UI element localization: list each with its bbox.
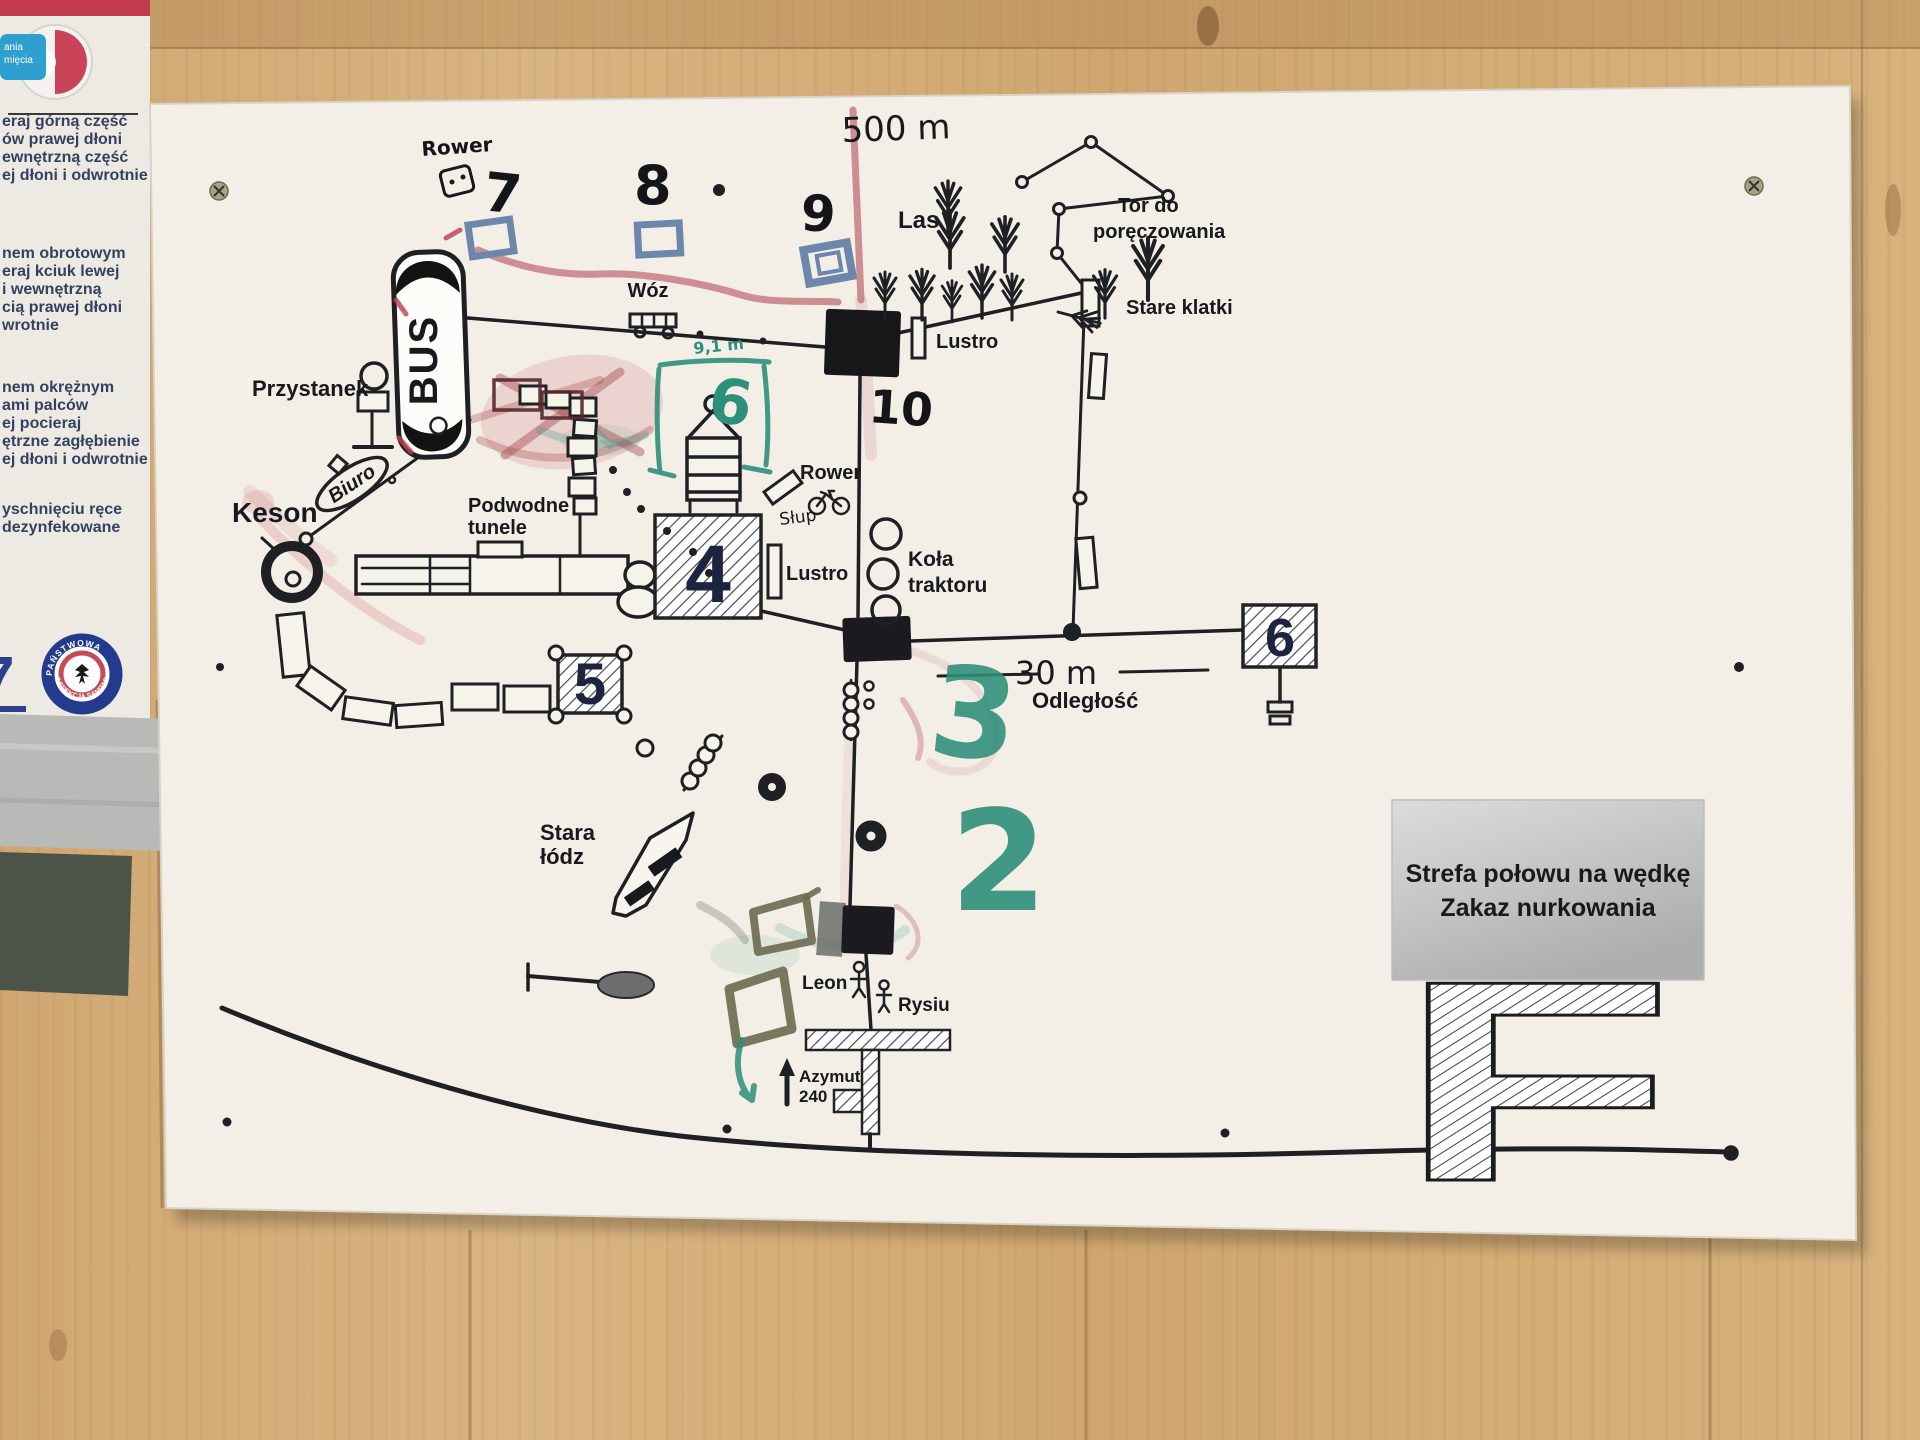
map-dot — [216, 663, 224, 671]
poster-red-band — [0, 0, 150, 16]
measure-dash — [1120, 670, 1208, 672]
caisson-label: Keson — [232, 497, 318, 528]
map-dot — [1221, 1129, 1230, 1138]
bus-stop-label: Przystanek — [252, 376, 369, 401]
mirror-top-shape — [912, 318, 925, 358]
forest-label: Las — [898, 207, 939, 234]
bike-label: Rower — [800, 462, 861, 484]
poster-line: wrotnie — [1, 317, 59, 334]
poster-step-number: 7 — [0, 645, 14, 714]
vertical-main-line — [858, 377, 860, 617]
green-number-3: 3 — [923, 638, 1025, 791]
distance-500-label: 500 m — [841, 107, 951, 151]
poster-line: eraj górną część — [2, 113, 128, 130]
photo-of-dive-site-map: ania mięcia eraj górną część ów prawej d… — [0, 0, 1920, 1440]
poster-line: dezynfekowane — [2, 519, 120, 536]
platform-box-bottom — [841, 905, 895, 955]
bus-label: BUS — [402, 315, 446, 405]
map-dot — [713, 184, 725, 196]
old-boat-label-2: łódz — [540, 844, 584, 869]
zone-label-1: Strefa połowu na wędkę — [1406, 860, 1691, 888]
zone-label-2: Zakaz nurkowania — [1440, 894, 1656, 922]
wood-knot — [1197, 6, 1219, 46]
mirror-top-label: Lustro — [936, 331, 998, 353]
screw-icon — [1745, 177, 1763, 195]
box6-number: 6 — [1265, 608, 1295, 668]
cart-label: Wóz — [627, 280, 668, 302]
green-number-2: 2 — [950, 781, 1047, 944]
box5-number: 5 — [574, 652, 606, 717]
tunnels-label-1: Podwodne — [468, 495, 569, 517]
wheels-label-1: Koła — [908, 548, 954, 571]
old-cages-label: Stare klatki — [1126, 297, 1233, 319]
poster-instructions-block4: yschnięciu ręce dezynfekowane — [2, 501, 122, 536]
poster-line: ami palców — [2, 397, 89, 414]
mirror-mid-shape — [768, 545, 781, 598]
poster-line: nem okrężnym — [2, 379, 114, 396]
rope-course-label-1: Tor do — [1118, 195, 1179, 217]
poster-line: ów prawej dłoni — [2, 131, 122, 148]
poster-line: eraj kciuk lewej — [2, 263, 119, 280]
leon-label: Leon — [802, 973, 847, 994]
poster-instructions-block1: eraj górną część ów prawej dłoni ewnętrz… — [2, 113, 148, 184]
azimuth-label-1: Azymut — [799, 1067, 861, 1086]
map-dot — [723, 1125, 732, 1134]
wood-knot — [49, 1329, 67, 1361]
tunnels-label-2: tunele — [468, 517, 527, 539]
badge-text: mięcia — [4, 55, 33, 66]
box4-number: 4 — [685, 529, 731, 620]
badge-text: ania — [4, 42, 23, 53]
number-8: 8 — [634, 154, 672, 217]
number-9: 9 — [799, 184, 837, 244]
poster-line: i wewnętrzną — [2, 281, 102, 298]
rope-course-label-2: poręczowania — [1093, 221, 1226, 243]
distance-word-label: Odległość — [1032, 688, 1138, 713]
letter-f-shape: F — [1398, 922, 1674, 1241]
poster-line: ewnętrzną część — [2, 149, 128, 166]
poster-line: yschnięciu ręce — [2, 501, 122, 518]
poster-line: ej dłoni i odwrotnie — [2, 167, 148, 184]
poster-line: ej dłoni i odwrotnie — [2, 451, 148, 468]
mirror-mid-label: Lustro — [786, 563, 848, 585]
wood-knot — [1885, 184, 1901, 236]
dark-folder — [0, 852, 132, 996]
rower-hand-label: Rower — [421, 132, 494, 161]
number-10: 10 — [867, 379, 935, 437]
rysiu-label: Rysiu — [898, 995, 950, 1016]
old-boat-label-1: Stara — [540, 820, 596, 845]
hand-wash-poster: ania mięcia eraj górną część ów prawej d… — [0, 0, 150, 800]
number-7: 7 — [481, 160, 525, 227]
map-dot — [1734, 662, 1744, 672]
distance-30-label: 30 m — [1015, 654, 1097, 692]
poster-line: ętrzne zagłębienie — [2, 433, 140, 450]
wheels-label-2: traktoru — [908, 574, 987, 597]
platform-box-top — [824, 309, 901, 378]
poster-line: cią prawej dłoni — [2, 299, 122, 316]
poster-line: nem obrotowym — [2, 245, 126, 262]
poster-line: ej pocieraj — [2, 415, 81, 432]
azimuth-label-2: 240 — [799, 1087, 827, 1106]
map-dot — [223, 1118, 232, 1127]
screw-icon — [210, 182, 228, 200]
map-photo-svg: ania mięcia eraj górną część ów prawej d… — [0, 0, 1920, 1440]
